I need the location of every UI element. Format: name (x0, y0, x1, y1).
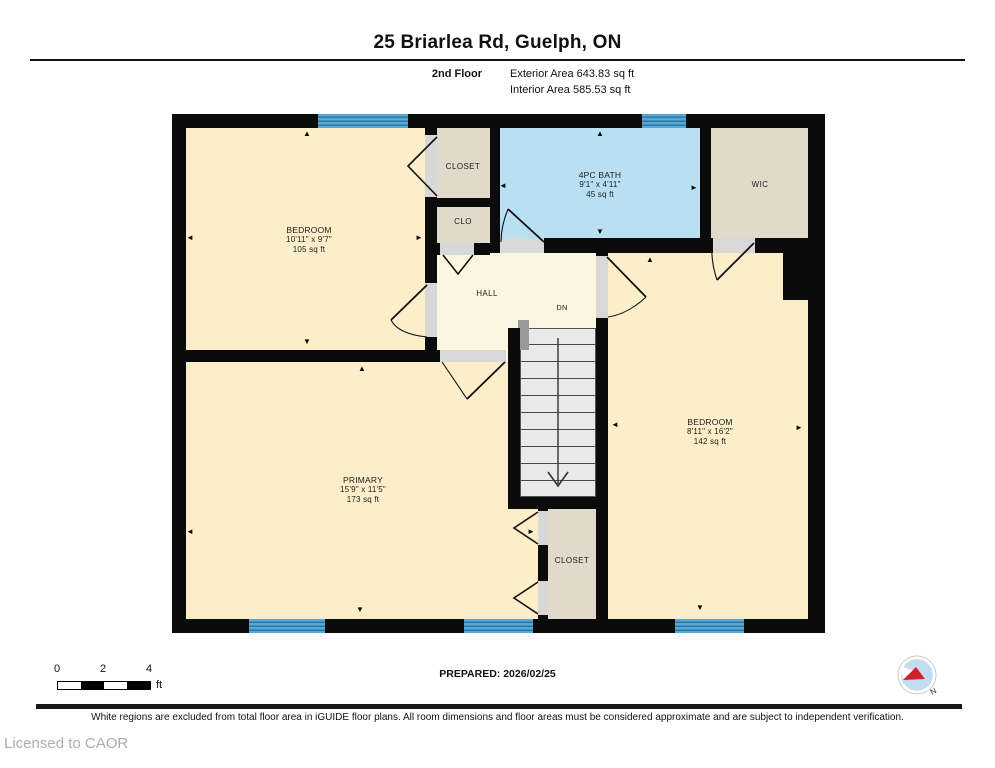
direction-marker: ▼ (596, 228, 604, 236)
scale-segment (81, 682, 104, 689)
room-label-hall: HALL (476, 289, 498, 299)
room-label-closet-top: CLOSET (446, 162, 480, 172)
window (318, 114, 408, 128)
door-opening (440, 350, 506, 362)
door-opening (440, 243, 474, 255)
direction-marker: ▼ (356, 606, 364, 614)
direction-marker: ▲ (596, 130, 604, 138)
direction-marker: ▲ (303, 130, 311, 138)
wall (700, 114, 711, 253)
room-name: 4PC BATH (579, 170, 622, 180)
room-label-clo: CLO (454, 217, 472, 227)
direction-marker: ▲ (358, 365, 366, 373)
direction-marker: ◄ (186, 234, 194, 242)
door-opening (500, 238, 544, 253)
room-name: BEDROOM (687, 417, 733, 427)
room-label-primary: PRIMARY 15'9" x 11'5" 173 sq ft (340, 475, 386, 505)
direction-marker: ◄ (611, 421, 619, 429)
direction-marker: ► (415, 234, 423, 242)
scale-bar (57, 681, 151, 690)
direction-marker: ◄ (186, 528, 194, 536)
disclaimer-text: White regions are excluded from total fl… (0, 712, 995, 723)
room-label-bedroom-tl: BEDROOM 10'11" x 9'7" 105 sq ft (286, 225, 332, 255)
wall (508, 497, 608, 509)
room-dims: 8'11" x 16'2" (687, 427, 733, 437)
wall (808, 114, 825, 633)
scale-segment (104, 682, 127, 689)
floorplan-page: 25 Briarlea Rd, Guelph, ON 2nd Floor Ext… (0, 0, 995, 768)
header-divider (30, 59, 965, 61)
page-title: 25 Briarlea Rd, Guelph, ON (0, 32, 995, 54)
room-area: 173 sq ft (340, 495, 386, 505)
room-label-bedroom-right: BEDROOM 8'11" x 16'2" 142 sq ft (687, 417, 733, 447)
room-dims: 9'1" x 4'11" (579, 180, 622, 190)
window (464, 619, 533, 633)
direction-marker: ▼ (696, 604, 704, 612)
door-opening (538, 511, 548, 545)
direction-marker: ► (690, 184, 698, 192)
exterior-area-label: Exterior Area 643.83 sq ft (510, 68, 634, 80)
wall (425, 198, 497, 207)
room-dims: 10'11" x 9'7" (286, 235, 332, 245)
direction-marker: ▼ (303, 338, 311, 346)
stairs-dn-label: DN (556, 303, 567, 313)
room-area: 142 sq ft (687, 437, 733, 447)
compass-north-label: N (929, 686, 939, 697)
wall (172, 350, 440, 362)
door-opening (538, 581, 548, 615)
scale-segment (127, 682, 150, 689)
wall (508, 328, 520, 509)
door-opening (596, 256, 608, 318)
direction-marker: ◄ (499, 182, 507, 190)
room-name: BEDROOM (286, 225, 332, 235)
scale-unit: ft (156, 679, 162, 691)
floor-label: 2nd Floor (370, 68, 482, 80)
window (675, 619, 744, 633)
scale-segment (58, 682, 81, 689)
room-label-wic: WIC (752, 180, 769, 190)
room-label-closet-bottom: CLOSET (555, 556, 589, 566)
room-area: 45 sq ft (579, 190, 622, 200)
room-label-bath: 4PC BATH 9'1" x 4'11" 45 sq ft (579, 170, 622, 200)
door-opening (713, 238, 755, 253)
room-area: 105 sq ft (286, 245, 332, 255)
license-text: Licensed to CAOR (4, 735, 128, 752)
interior-area-label: Interior Area 585.53 sq ft (510, 84, 630, 96)
door-opening (425, 135, 437, 197)
prepared-date: PREPARED: 2026/02/25 (0, 668, 995, 680)
footer-divider (36, 704, 962, 709)
direction-marker: ► (795, 424, 803, 432)
direction-marker: ▲ (646, 256, 654, 264)
window (642, 114, 686, 128)
window (249, 619, 325, 633)
room-name: PRIMARY (340, 475, 386, 485)
wall (172, 114, 186, 633)
direction-marker: ► (527, 528, 535, 536)
room-dims: 15'9" x 11'5" (340, 485, 386, 495)
staircase (520, 328, 596, 497)
door-opening (425, 283, 437, 337)
